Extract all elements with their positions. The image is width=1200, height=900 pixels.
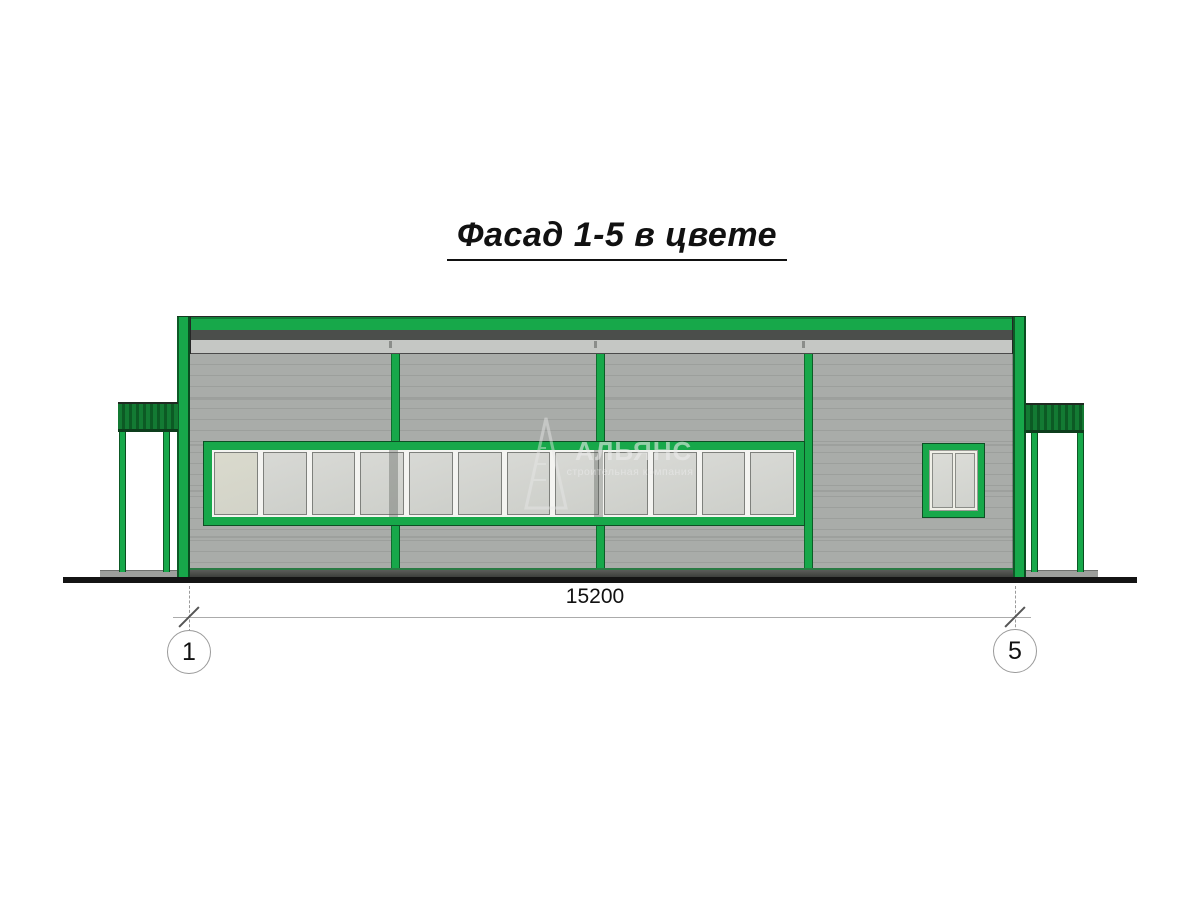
window-pane [653,452,697,515]
canopy-post [119,432,126,572]
window-pane [263,452,307,515]
canopy-roof-left [118,402,178,432]
window-strip-panes [212,450,796,517]
ground-line [63,577,1137,583]
axis-extension-line [1015,586,1016,632]
parapet-tick [594,341,597,348]
window-pane [507,452,551,515]
ribbon-window [203,441,805,526]
window-pane [409,452,453,515]
corner-column-right [1013,316,1026,577]
canopy-post [163,432,170,572]
axis-bubble-5: 5 [993,629,1037,673]
window-pane [750,452,794,515]
parapet-tick [802,341,805,348]
small-window-panes [929,450,978,511]
canopy-roof-right [1026,403,1084,433]
axis-label-left: 1 [182,638,196,667]
window-pane [702,452,746,515]
window-pane [555,452,599,515]
canopy-post [1031,433,1038,572]
building-plinth [180,568,1022,577]
parapet-green-stripe [191,317,1012,330]
window-pane [604,452,648,515]
axis-bubble-1: 1 [167,630,211,674]
window-pane [955,453,976,508]
mullion-behind-glass [389,450,398,517]
parapet-dark-stripe [191,330,1012,340]
parapet-band [190,316,1013,354]
window-pane [312,452,356,515]
window-pane [214,452,258,515]
parapet-tick [389,341,392,348]
corner-column-left [177,316,190,577]
window-pane [932,453,953,508]
wall-mullion [804,354,813,572]
mullion-behind-glass [594,450,603,517]
small-window [922,443,985,518]
axis-extension-line [189,586,190,632]
dimension-line [173,617,1031,618]
parapet-light-stripe [191,340,1012,354]
dimension-value: 15200 [495,585,695,609]
canopy-post [1077,433,1084,572]
facade-drawing: АЛЬЯНС строительная компания 15200 1 5 [0,0,1200,900]
axis-label-right: 5 [1008,637,1022,666]
window-pane [458,452,502,515]
